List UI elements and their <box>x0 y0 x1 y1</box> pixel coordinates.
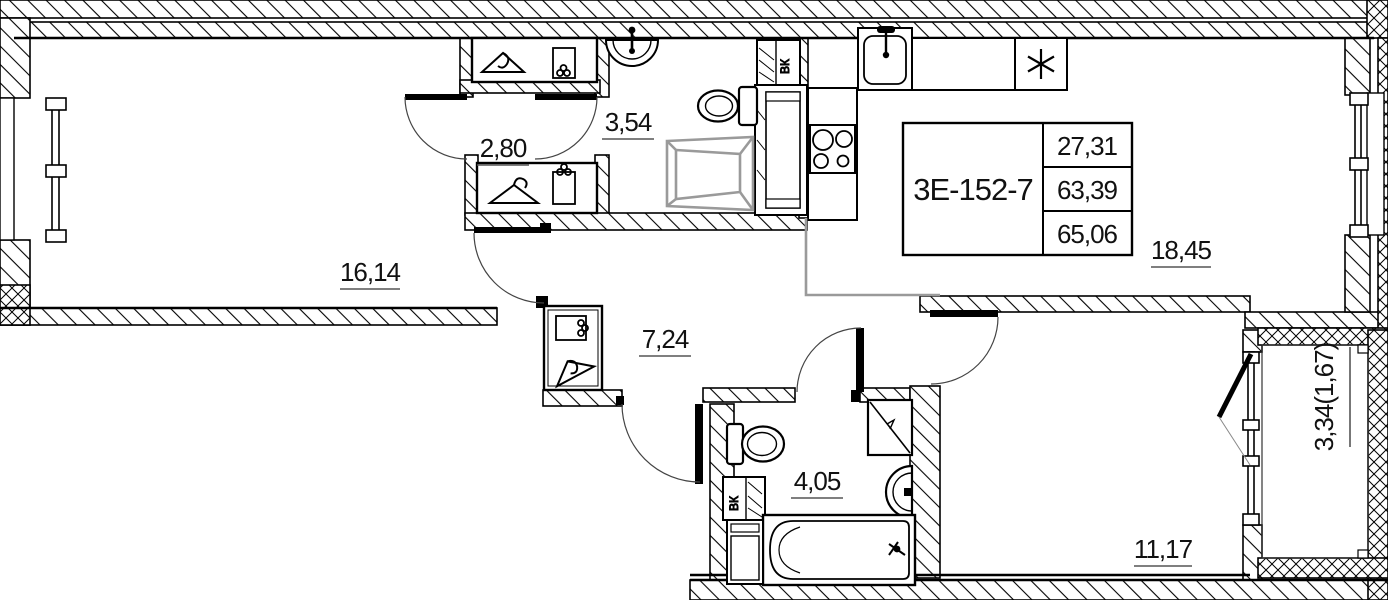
room-label-wardrobe: 2,80 <box>480 133 527 163</box>
door-entry <box>622 404 703 484</box>
washing-machine-icon <box>868 400 912 455</box>
vent-shaft-bathroom: ВК <box>723 477 765 520</box>
wall-top-outer <box>0 0 1388 18</box>
door-bathroom <box>797 328 864 392</box>
bath-cabinet-icon <box>727 520 763 584</box>
wall-bedroom-north <box>920 296 1250 312</box>
closet-top <box>472 38 597 82</box>
room-label-living: 16,14 <box>340 257 401 287</box>
window-living <box>0 98 66 242</box>
floor-plan-page: ВК ВК <box>0 0 1388 600</box>
closet-bottom <box>477 163 597 213</box>
wall-corner-top-right <box>1367 0 1388 38</box>
wall-bath-north <box>703 388 795 402</box>
wall-living-south <box>0 308 497 325</box>
unit-area-row-2: 65,06 <box>1057 219 1118 249</box>
vent-shaft-wc: ВК <box>757 40 800 85</box>
bath-toilet-icon <box>727 424 784 464</box>
room-label-bathroom: 4,05 <box>794 466 841 496</box>
wall-top-inner <box>14 22 1374 38</box>
unit-area-row-0: 27,31 <box>1057 131 1118 161</box>
wc-toilet-icon <box>698 87 757 125</box>
room-label-balcony: 3,34(1,67) <box>1309 342 1339 451</box>
door-wc <box>535 94 597 159</box>
floor-plan-drawing: ВК ВК <box>0 0 1388 600</box>
room-label-bedroom: 11,17 <box>1134 534 1193 564</box>
room-label-wc: 3,54 <box>605 107 652 137</box>
wall-left-upper <box>0 18 30 98</box>
wall-balcony-bottom <box>1258 558 1388 578</box>
unit-code: 3Е-152-7 <box>913 172 1033 207</box>
kitchen-counter-top <box>912 38 1015 90</box>
bathtub-icon <box>763 515 915 585</box>
door-balcony <box>1219 354 1251 465</box>
vent-shaft-tall <box>755 85 807 215</box>
wall-south-right <box>1245 312 1388 328</box>
wall-right-lower <box>1345 235 1370 312</box>
walls <box>0 0 1388 600</box>
room-label-kitchen-living: 18,45 <box>1151 235 1212 265</box>
fridge-icon <box>1015 38 1067 90</box>
kitchen-sink-icon <box>858 26 912 90</box>
stove-icon <box>810 125 855 173</box>
wall-entry <box>543 390 622 406</box>
door-living-hall <box>474 227 544 303</box>
closet-hall <box>544 306 602 390</box>
vent-label: ВК <box>727 496 741 511</box>
door-living-vestibule <box>405 94 467 159</box>
unit-info-table: 3Е-152-7 27,31 63,39 65,06 <box>903 123 1132 255</box>
room-label-hall: 7,24 <box>642 324 689 354</box>
vent-label: ВК <box>778 59 792 74</box>
wall-right-upper <box>1345 38 1370 95</box>
wall-corner-bottom-left <box>0 285 30 325</box>
unit-area-row-1: 63,39 <box>1057 175 1118 205</box>
window-kitchen-living <box>1350 93 1384 237</box>
window-balcony-unit <box>1243 352 1259 525</box>
door-bedroom <box>930 310 998 384</box>
bath-sink-icon <box>886 466 913 518</box>
shower-icon <box>667 137 753 210</box>
